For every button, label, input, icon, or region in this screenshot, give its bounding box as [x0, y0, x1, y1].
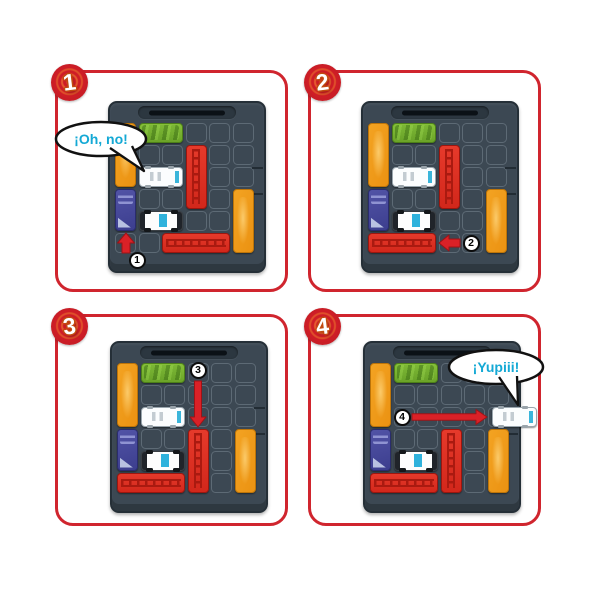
step-number-badge: 4 [304, 308, 341, 345]
instruction-sheet: 1 1 ¡Oh, no! 2 2 [0, 0, 600, 600]
speech-bubble-tail [499, 376, 518, 405]
step-panel-1: 1 1 ¡Oh, no! [55, 70, 288, 292]
move-arrow-layer [363, 103, 521, 275]
move-number: 2 [468, 237, 474, 249]
puzzle-board: 3 [110, 341, 268, 513]
step-number: 2 [315, 70, 331, 94]
speech-bubble-tail [110, 146, 144, 171]
step-panel-2: 2 2 [308, 70, 541, 292]
speech-bubble-text: ¡Oh, no! [74, 131, 128, 147]
move-arrow-left [439, 235, 460, 251]
speech-bubble: ¡Yupiii! [311, 317, 544, 529]
puzzle-board: 2 [361, 101, 519, 273]
move-arrow-down [190, 381, 206, 427]
step-number-badge: 1 [51, 64, 88, 101]
step-number: 3 [62, 314, 78, 338]
step-panel-4: 4 4 ¡Yupiii! [308, 314, 541, 526]
step-number: 1 [62, 70, 78, 94]
move-number-badge: 3 [190, 362, 207, 379]
step-number-badge: 3 [51, 308, 88, 345]
step-panel-3: 3 3 [55, 314, 288, 526]
step-number: 4 [315, 314, 331, 338]
step-number-badge: 2 [304, 64, 341, 101]
move-number: 3 [195, 364, 201, 376]
speech-bubble-text: ¡Yupiii! [473, 359, 520, 375]
move-number-badge: 2 [463, 235, 480, 252]
speech-bubble: ¡Oh, no! [58, 73, 291, 295]
